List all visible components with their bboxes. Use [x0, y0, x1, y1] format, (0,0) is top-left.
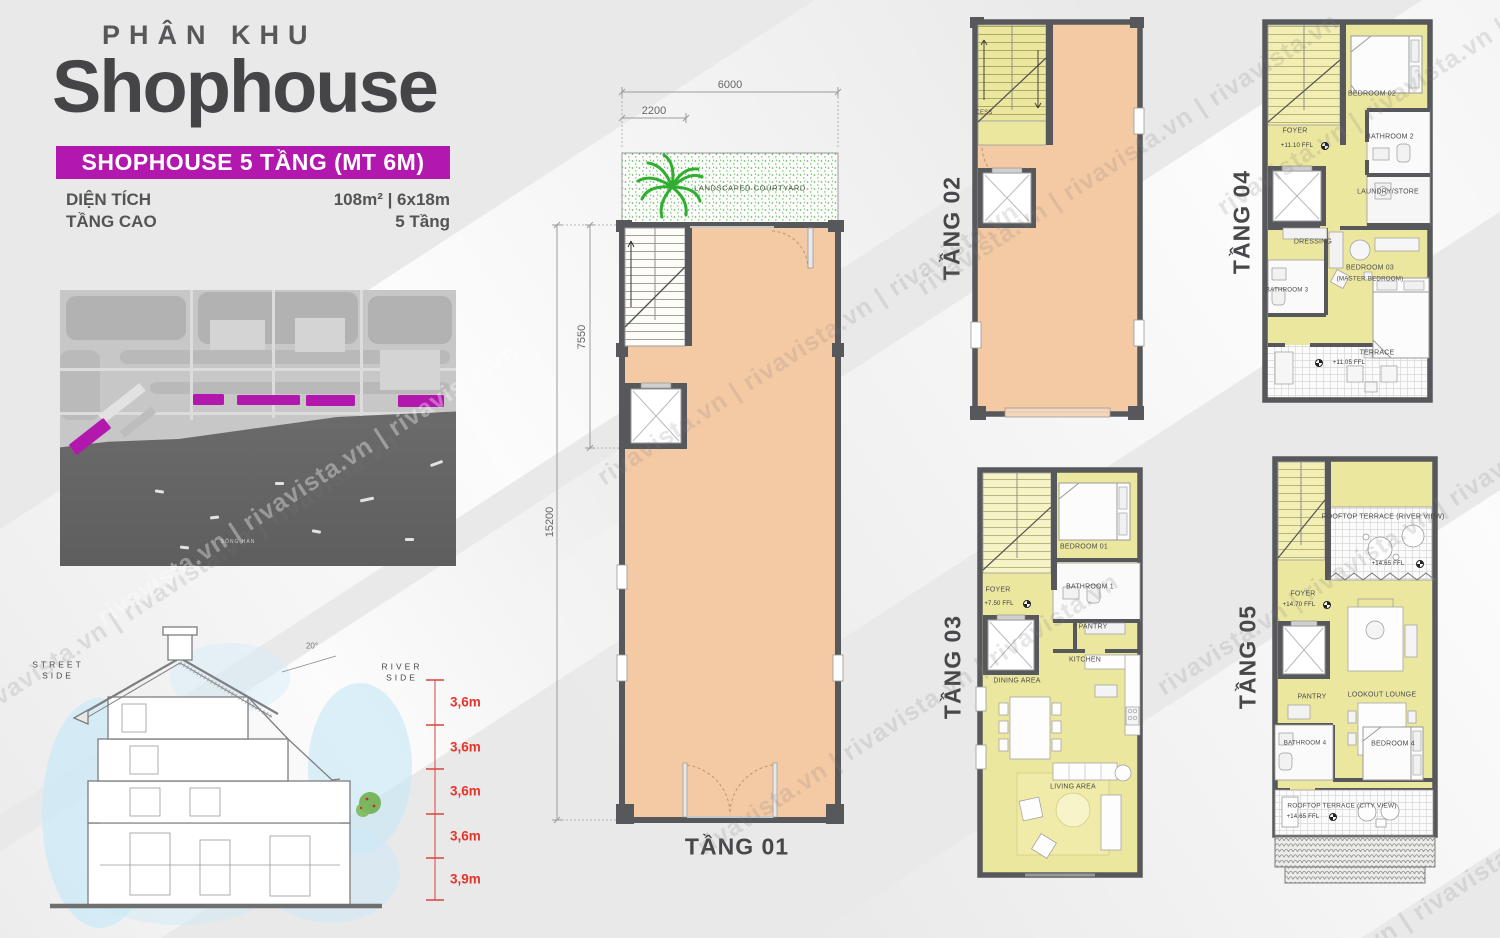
river-side-label: RIVER SIDE — [382, 662, 423, 685]
level-marker-icon — [1023, 600, 1031, 608]
elevator — [983, 615, 1039, 675]
room-label: BATHROOM 2 — [1366, 134, 1414, 141]
road — [360, 290, 363, 416]
spec-row: TẦNG CAO 5 Tầng — [66, 211, 450, 233]
room-label: FOYER — [1290, 591, 1315, 598]
spec-value: 5 Tầng — [395, 211, 450, 233]
room-label: DINING AREA — [993, 678, 1040, 685]
room-label: BEDROOM 03 — [1346, 265, 1394, 272]
level-marker-icon — [1329, 813, 1337, 821]
cross-section-drawing: STREET SIDE RIVER SIDE 20° 3,6m 3,6m 3,6… — [30, 618, 500, 938]
floor-height: 3,6m — [450, 695, 481, 710]
room-label: FOYER — [1282, 128, 1307, 135]
building-block — [295, 318, 345, 352]
floor1-title: TẦNG 01 — [685, 834, 789, 861]
room-label: KITCHEN — [1069, 657, 1101, 664]
spec-table: DIỆN TÍCH 108m² | 6x18m TẦNG CAO 5 Tầng — [66, 189, 450, 233]
room-label: PANTRY — [1298, 694, 1327, 701]
room-label: BEDROOM 01 — [1060, 544, 1108, 551]
room-label: FOYER — [985, 587, 1010, 594]
floor-plan-tang-02: CESS TẦNG 02 — [930, 10, 1145, 434]
street-side-label: STREET SIDE — [32, 660, 84, 683]
room-label: BATHROOM 1 — [1066, 584, 1114, 591]
floor-plan-tang-01: 6000 2200 15200 7550 LANDSCAPED COURTYAR… — [540, 75, 870, 880]
floor5-title: TẦNG 05 — [1235, 605, 1262, 709]
level-label: +11.05 FFL — [1333, 360, 1365, 366]
dim-stair-zone: 7550 — [576, 325, 588, 349]
room-label: (MASTER BEDROOM) — [1337, 276, 1404, 283]
living-room-furniture — [1017, 763, 1131, 858]
tree-cluster — [60, 350, 100, 420]
dim-depth: 15200 — [544, 507, 556, 538]
level-marker-icon — [1323, 601, 1331, 609]
highlighted-shophouse-lot — [398, 395, 444, 407]
boat — [405, 538, 414, 541]
building-block — [380, 350, 440, 390]
floor1-plan-drawing — [540, 75, 870, 880]
dining-table — [999, 697, 1061, 759]
highlighted-shophouse-lot — [193, 394, 224, 405]
pantry-shelves — [1288, 705, 1310, 719]
level-label: +11.10 FFL — [1281, 143, 1313, 149]
product-banner: SHOPHOUSE 5 TẦNG (MT 6M) — [56, 146, 450, 179]
staircase — [625, 228, 692, 346]
room-label: BATHROOM 4 — [1284, 740, 1326, 747]
level-label: +14.65 FFL — [1372, 561, 1405, 567]
floor-height: 3,6m — [450, 784, 481, 799]
bed-icon-master — [1364, 272, 1429, 358]
room-label: ROOFTOP TERRACE (CITY VIEW) — [1287, 803, 1396, 810]
floor-plan-tang-04: BEDROOM 02 FOYER +11.10 FFL BATHROOM 2 L… — [1225, 10, 1500, 434]
room-label: LOOKOUT LOUNGE — [1348, 692, 1416, 699]
level-label: +14.65 FFL — [1287, 814, 1320, 820]
brochure-canvas: PHÂN KHU Shophouse SHOPHOUSE 5 TẦNG (MT … — [0, 0, 1500, 938]
floor3-title: TẦNG 03 — [940, 615, 967, 719]
page-title: Shophouse — [52, 44, 437, 129]
highlighted-shophouse-lot — [237, 395, 300, 405]
level-marker-icon — [1315, 359, 1323, 367]
spec-label: DIỆN TÍCH — [66, 189, 151, 211]
room-label: BEDROOM 02 — [1348, 91, 1396, 98]
dim-width: 6000 — [718, 79, 742, 91]
tree-cluster — [368, 296, 452, 344]
floor4-title: TẦNG 04 — [1229, 170, 1256, 274]
river-name-label: SÔNG HÀN — [221, 539, 256, 545]
height-dim-ticks — [426, 680, 444, 900]
room-label: LIVING AREA — [1050, 784, 1096, 791]
section-artwork — [30, 618, 500, 938]
city-terrace-area — [1275, 790, 1433, 835]
elevator — [978, 168, 1036, 228]
level-marker-icon — [1321, 142, 1329, 150]
floor-plan-tang-03: BEDROOM 01 FOYER +7.50 FFL BATHROOM 1 PA… — [935, 455, 1150, 890]
floor3-plan-drawing — [935, 455, 1150, 890]
room-label: PANTRY — [1079, 624, 1108, 631]
floor-height: 3,6m — [450, 740, 481, 755]
courtyard-label: LANDSCAPED COURTYARD — [694, 184, 806, 193]
elevator — [625, 383, 687, 449]
room-label: ROOFTOP TERRACE (RIVER VIEW) — [1321, 514, 1444, 521]
site-location-map: SÔNG HÀN — [60, 290, 456, 566]
floor-plan-tang-05: ROOFTOP TERRACE (RIVER VIEW) +14.65 FFL … — [1230, 445, 1500, 923]
room-label: DRESSING — [1294, 239, 1332, 246]
room-label: TERRACE — [1360, 350, 1395, 357]
highlighted-shophouse-lot — [306, 395, 355, 406]
balcony-edge — [1005, 408, 1110, 417]
bed-icon-bedroom4 — [1363, 727, 1423, 780]
roof-tiles-city-side — [1275, 837, 1435, 883]
roof-angle-line — [282, 656, 336, 672]
room-label: BEDROOM 4 — [1371, 741, 1415, 748]
spec-label: TẦNG CAO — [66, 211, 157, 233]
room-label: LAUNDRY/STORE — [1357, 189, 1419, 196]
dim-courtyard-bay: 2200 — [642, 105, 666, 117]
door-panel — [808, 228, 813, 268]
level-marker-icon — [1416, 560, 1424, 568]
elevator — [1265, 163, 1335, 233]
building-block — [210, 320, 265, 350]
access-label: CESS — [975, 110, 992, 116]
floor-height: 3,6m — [450, 829, 481, 844]
staircase — [978, 22, 1053, 145]
floor2-title: TẦNG 02 — [939, 176, 966, 280]
level-label: +7.50 FFL — [984, 601, 1013, 607]
staircase — [983, 470, 1057, 590]
boat — [275, 482, 284, 485]
elevator — [1278, 621, 1330, 679]
level-label: +14.70 FFL — [1283, 602, 1316, 608]
bed-icon-bedroom01 — [1059, 483, 1130, 540]
room-label: BATHROOM 3 — [1266, 287, 1308, 294]
bed-icon-bedroom02 — [1351, 36, 1422, 93]
spec-value: 108m² | 6x18m — [334, 189, 450, 211]
spec-row: DIỆN TÍCH 108m² | 6x18m — [66, 189, 450, 211]
tree-cluster — [66, 296, 186, 340]
roof-angle-value: 20° — [306, 642, 318, 651]
floor-height: 3,9m — [450, 872, 481, 887]
